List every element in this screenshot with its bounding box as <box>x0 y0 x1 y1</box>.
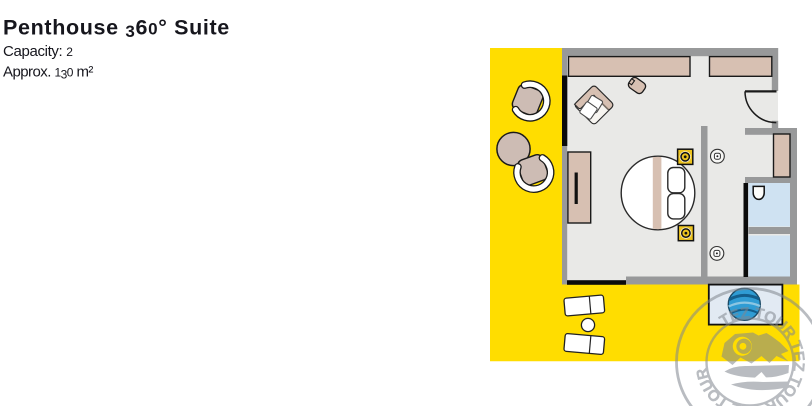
svg-text:Penthouse 360° Suite: Penthouse 360° Suite <box>3 16 230 41</box>
svg-text:Approx. 130 m²: Approx. 130 m² <box>3 64 93 82</box>
svg-text:Capacity: 2: Capacity: 2 <box>3 43 73 60</box>
